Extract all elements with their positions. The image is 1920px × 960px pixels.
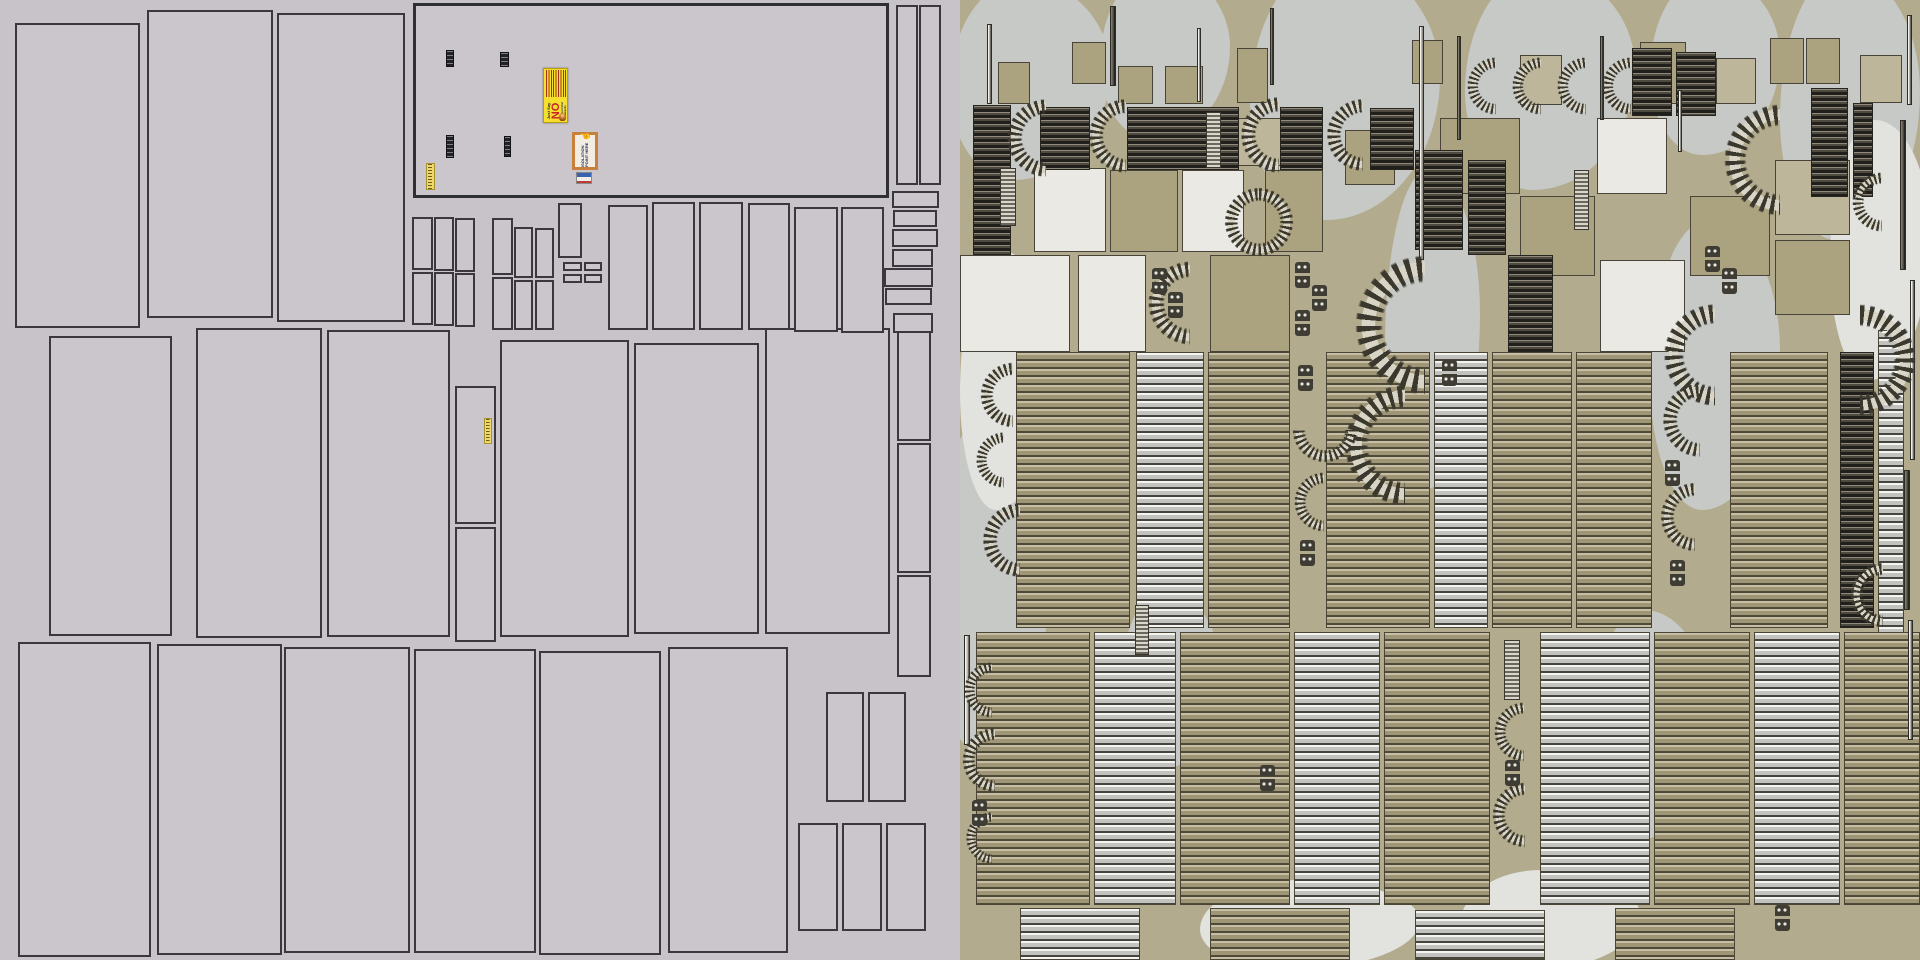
- corrugated-panel-tile: [1020, 908, 1140, 960]
- fin-panel-tile: [1127, 107, 1239, 170]
- uv-island-rect: [584, 274, 602, 283]
- uv-island-rect: [455, 218, 475, 272]
- uv-island-rect: [563, 262, 582, 271]
- uv-island-rect: [841, 207, 884, 333]
- plate-tile: [998, 62, 1030, 104]
- corrugated-panel-tile: [1210, 908, 1350, 960]
- uv-island-rect: [196, 328, 322, 638]
- plate-tile: [1770, 38, 1804, 84]
- uv-island-rect: [414, 649, 536, 953]
- mounting-slot: [446, 50, 454, 67]
- uv-island-rect: [455, 527, 496, 642]
- uv-layout-half: Just Say NO To Electrical Hazards ISOLAT…: [0, 0, 960, 960]
- plate-tile: [1775, 240, 1850, 315]
- corrugated-panel-tile: [1730, 352, 1828, 628]
- bolt-cluster-tile: [1665, 460, 1680, 486]
- corrugated-panel-tile: [1654, 632, 1750, 905]
- uv-island-rect: [886, 823, 926, 931]
- bolt-cluster-tile: [1442, 360, 1457, 386]
- ribbed-stack-tile: [1000, 168, 1016, 226]
- bolt-cluster-tile: [1295, 262, 1310, 288]
- pipe-tile: [1110, 6, 1116, 86]
- plate-tile: [1072, 42, 1106, 84]
- bolt-cluster-tile: [1775, 905, 1790, 931]
- uv-island-rect: [892, 249, 933, 267]
- pipe-tile: [1678, 90, 1682, 152]
- toothed-arc-tile: [1222, 185, 1296, 259]
- uv-island-rect: [327, 330, 450, 637]
- mounting-slot: [500, 52, 509, 67]
- uv-island-rect: [492, 218, 513, 275]
- corrugated-panel-tile: [1094, 632, 1176, 905]
- bolt-cluster-tile: [1300, 540, 1315, 566]
- plate-tile: [1210, 255, 1290, 352]
- corrugated-panel-tile: [1384, 632, 1490, 905]
- uv-island-rect: [412, 272, 433, 325]
- plate-tile: [1237, 48, 1268, 103]
- uv-island-rect: [284, 647, 410, 953]
- fin-panel-tile: [1468, 160, 1506, 255]
- uv-island-rect: [765, 328, 890, 634]
- uv-island-rect: [500, 340, 629, 637]
- painted-texture-half: [960, 0, 1920, 960]
- isolation-line-2: POINT HERE: [585, 143, 589, 167]
- uv-island-rect: [897, 443, 931, 573]
- plate-tile: [1078, 255, 1146, 352]
- uv-island-rect: [15, 23, 140, 328]
- fin-panel-tile: [1040, 107, 1090, 170]
- uv-island-rect: [434, 272, 454, 326]
- uv-island-rect: [699, 202, 743, 330]
- isolation-decal-content: ISOLATION POINT HERE ☝: [575, 135, 595, 167]
- uv-island-rect: [492, 277, 513, 330]
- bolt-cluster-tile: [1168, 292, 1183, 318]
- uv-island-rect: [412, 217, 433, 270]
- uv-island-rect: [18, 642, 151, 957]
- fin-panel-tile: [1811, 88, 1848, 197]
- uv-island-rect: [455, 386, 496, 524]
- mounting-slot: [504, 136, 511, 157]
- uv-island-rect: [147, 10, 273, 318]
- uv-island-rect: [277, 13, 405, 322]
- decal-fine-print: [546, 70, 567, 97]
- uv-island-rect: [535, 280, 554, 330]
- uv-island-rect: [798, 823, 838, 931]
- pipe-tile: [1904, 470, 1910, 610]
- uv-island-rect: [893, 313, 933, 333]
- pointing-hand-icon: ☝: [581, 130, 590, 141]
- bolt-cluster-tile: [1312, 285, 1327, 311]
- uv-island-rect: [539, 651, 661, 955]
- uv-island-rect: [896, 5, 918, 185]
- pipe-tile: [1457, 36, 1461, 140]
- bolt-cluster-tile: [1298, 365, 1313, 391]
- pipe-tile: [1419, 26, 1424, 260]
- electrical-hazard-decal: Just Say NO To Electrical Hazards: [543, 68, 568, 123]
- uv-island-rect: [563, 274, 582, 283]
- pipe-tile: [987, 24, 992, 104]
- uv-island-rect: [826, 692, 864, 802]
- uv-island-rect: [652, 202, 695, 330]
- uv-island-rect: [157, 644, 282, 955]
- corrugated-panel-tile: [1540, 632, 1650, 905]
- uv-island-rect: [885, 288, 932, 305]
- uv-island-rect: [668, 647, 788, 953]
- plate-tile: [1597, 118, 1667, 194]
- bolt-cluster-tile: [1670, 560, 1685, 586]
- fin-panel-tile: [1676, 52, 1716, 116]
- pipe-tile: [1907, 15, 1912, 105]
- uv-main-panel: [413, 3, 889, 198]
- uv-island-rect: [893, 210, 937, 227]
- corrugated-panel-tile: [1016, 352, 1130, 628]
- uv-island-rect: [868, 692, 906, 802]
- uv-island-rect: [49, 336, 172, 636]
- fin-panel-tile: [1370, 108, 1414, 170]
- plate-tile: [1034, 168, 1106, 252]
- corrugated-panel-tile: [1415, 910, 1545, 960]
- warning-sticker-strip: [426, 163, 435, 190]
- isolation-decal-text: ISOLATION POINT HERE: [581, 143, 589, 167]
- texture-atlas-sheet: Just Say NO To Electrical Hazards ISOLAT…: [0, 0, 1920, 960]
- plate-tile: [1412, 40, 1443, 84]
- pipe-tile: [1900, 120, 1906, 270]
- ribbed-stack-tile: [1574, 170, 1589, 230]
- mounting-slot: [446, 135, 454, 158]
- uv-island-rect: [748, 203, 790, 330]
- isolation-point-decal: ISOLATION POINT HERE ☝: [572, 132, 598, 170]
- uv-island-rect: [892, 191, 939, 208]
- uv-island-rect: [897, 316, 931, 441]
- ribbed-stack-tile: [1206, 112, 1221, 168]
- uv-island-rect: [514, 227, 533, 278]
- plate-tile: [1110, 170, 1178, 252]
- plate-tile: [960, 255, 1070, 352]
- fin-panel-tile: [1280, 107, 1323, 170]
- uv-island-rect: [535, 228, 554, 278]
- uv-island-rect: [514, 280, 533, 330]
- corrugated-panel-tile: [1294, 632, 1380, 905]
- uv-island-rect: [558, 203, 582, 258]
- corrugated-panel-tile: [1754, 632, 1840, 905]
- fin-panel-tile: [1508, 255, 1553, 352]
- bolt-cluster-tile: [1722, 268, 1737, 294]
- uv-island-rect: [434, 217, 454, 271]
- corrugated-panel-tile: [1576, 352, 1652, 628]
- plate-tile: [1860, 55, 1902, 103]
- uv-island-rect: [584, 262, 602, 271]
- electrical-decal-text-column: Just Say NO To Electrical Hazards: [544, 98, 569, 124]
- uv-island-rect: [455, 273, 475, 327]
- bolt-cluster-tile: [972, 800, 987, 826]
- pipe-tile: [1908, 620, 1913, 740]
- uv-island-rect: [634, 343, 759, 634]
- cartoon-figure-icon: [559, 113, 566, 121]
- uv-island-rect: [842, 823, 882, 931]
- plate-tile: [1806, 38, 1840, 84]
- bolt-cluster-tile: [1260, 765, 1275, 791]
- pipe-tile: [1270, 8, 1274, 85]
- corrugated-panel-tile: [1136, 352, 1204, 628]
- pipe-tile: [1197, 28, 1201, 102]
- plate-tile: [1716, 58, 1756, 104]
- uv-island-rect: [919, 5, 941, 185]
- fin-panel-tile: [1632, 48, 1672, 116]
- uv-island-rect: [608, 205, 648, 330]
- bolt-cluster-tile: [1705, 246, 1720, 272]
- bolt-cluster-tile: [1152, 268, 1167, 294]
- uv-island-rect: [892, 229, 938, 247]
- uv-island-rect: [897, 575, 931, 677]
- corrugated-panel-tile: [1615, 908, 1735, 960]
- uv-island-rect: [884, 268, 933, 287]
- small-flag-sticker: [576, 172, 592, 184]
- corrugated-panel-tile: [1492, 352, 1572, 628]
- uv-island-rect: [794, 207, 838, 332]
- corrugated-panel-tile: [1434, 352, 1488, 628]
- corrugated-panel-tile: [1208, 352, 1290, 628]
- bolt-cluster-tile: [1295, 310, 1310, 336]
- ribbed-stack-tile: [1504, 640, 1520, 700]
- ribbed-stack-tile: [1135, 605, 1149, 655]
- warning-sticker-strip: [484, 418, 492, 444]
- bolt-cluster-tile: [1505, 760, 1520, 786]
